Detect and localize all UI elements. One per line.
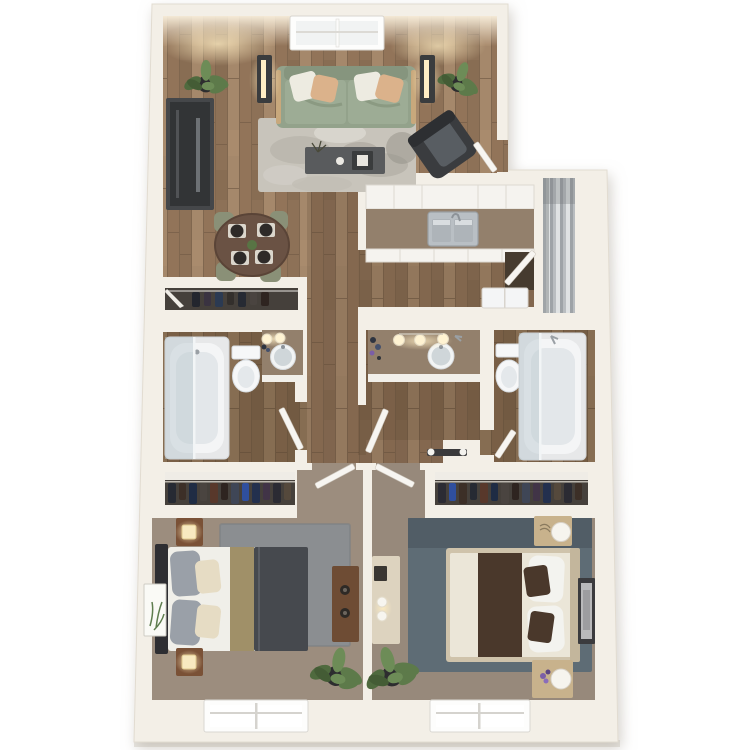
bathroom2-tub xyxy=(519,333,586,460)
kitchen-sink xyxy=(428,212,478,246)
utility-doorway xyxy=(504,250,536,290)
table-lamp xyxy=(182,525,196,539)
purple-flowers xyxy=(540,673,546,679)
closet-rod xyxy=(165,290,298,292)
dining-table xyxy=(215,214,289,276)
white-appliance xyxy=(482,288,528,308)
bed2-runner xyxy=(478,553,522,657)
bedroom1-nightstand-bottom xyxy=(175,648,203,676)
toiletry-bottles xyxy=(262,345,267,350)
upper-cabinets xyxy=(366,185,534,209)
bedroom1-dresser xyxy=(332,566,359,642)
bathroom1-tub xyxy=(165,337,229,459)
bedroom2-bed xyxy=(446,548,580,662)
bedroom2-artwork xyxy=(578,578,595,644)
floor-plan-svg xyxy=(0,0,750,750)
tv-screen-edge xyxy=(196,118,200,192)
bedroom1-artwork xyxy=(144,584,166,636)
table-centerpiece xyxy=(247,240,257,250)
towel-bar xyxy=(427,449,467,457)
bedroom2-nightstand-bottom xyxy=(532,660,573,698)
living-room-window xyxy=(290,16,384,50)
bathroom1-toilet xyxy=(232,346,260,392)
white-lamp xyxy=(552,523,571,542)
shower-glass-2 xyxy=(519,333,541,460)
bed1-runner xyxy=(230,547,254,651)
bathroom1-vanity xyxy=(260,330,303,382)
bedroom2-dresser xyxy=(372,556,400,644)
mirror-bulb xyxy=(262,334,272,344)
floor-lamp-left xyxy=(249,54,281,106)
shower-glass xyxy=(165,337,195,459)
bedroom1-window xyxy=(204,700,308,732)
bathroom2-toilet xyxy=(496,344,522,392)
sofa xyxy=(276,66,416,128)
closet-rod xyxy=(165,481,295,483)
bed1-comforter xyxy=(254,547,308,651)
media-console xyxy=(166,98,214,210)
bedroom2-window xyxy=(430,700,530,732)
dresser-decor xyxy=(374,566,387,581)
louvered-closet xyxy=(543,178,575,313)
bedroom2-closet xyxy=(435,472,588,505)
bedroom1-bed xyxy=(155,544,308,654)
bedroom1-nightstand-top xyxy=(175,518,203,546)
floor-plan-image xyxy=(0,0,750,750)
bedroom1-closet xyxy=(165,472,295,505)
coat-closet xyxy=(165,288,298,310)
bedroom2-nightstand-top xyxy=(534,516,572,546)
